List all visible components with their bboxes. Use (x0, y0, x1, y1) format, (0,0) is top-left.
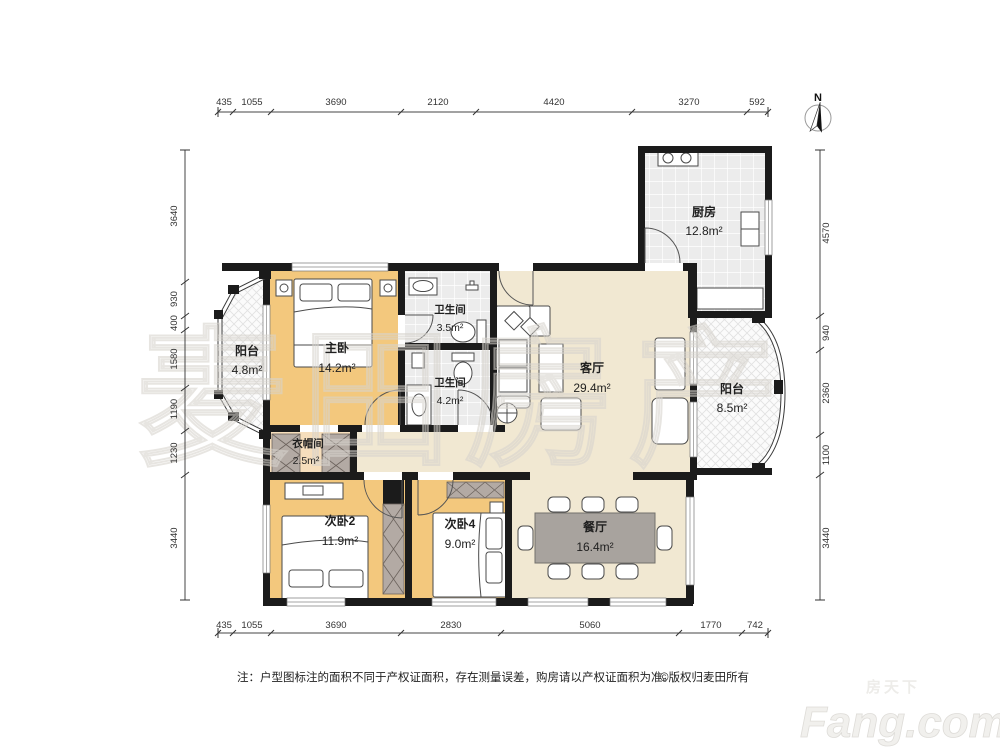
window (765, 200, 772, 255)
svg-text:1100: 1100 (821, 445, 832, 465)
svg-text:3640: 3640 (169, 205, 180, 226)
svg-text:1230: 1230 (169, 442, 180, 463)
svg-text:4.8m²: 4.8m² (232, 363, 263, 377)
cloakroom-label: 衣帽间 (292, 437, 324, 450)
svg-text:1770: 1770 (700, 620, 721, 631)
wardrobe-icon (383, 480, 404, 594)
svg-text:1190: 1190 (169, 399, 180, 419)
window (292, 263, 388, 271)
dresser-icon (285, 483, 343, 499)
bath-mid-label: 卫生间 (434, 376, 466, 389)
kitchen-label: 厨房 (692, 204, 716, 219)
dimension-bottom: 435 1055 3690 2830 5060 1770 742 (215, 620, 771, 638)
svg-text:940: 940 (821, 325, 832, 341)
fang-logo-cn: 房天下 (866, 678, 920, 696)
svg-text:2120: 2120 (427, 97, 448, 108)
window (610, 598, 666, 606)
svg-text:4.2m²: 4.2m² (437, 395, 464, 407)
floorplan-page: 麦田房产 厨房 12.8m² 阳台 4.8m² 主卧 14.2m² 卫生间 3.… (0, 0, 1000, 750)
copyright-note: ©版权归麦田所有 (660, 670, 749, 684)
svg-text:742: 742 (747, 620, 763, 631)
bed4-label: 次卧4 (445, 516, 476, 531)
svg-text:3440: 3440 (821, 527, 832, 548)
window (528, 598, 588, 606)
counter-icon (697, 288, 763, 309)
north-arrow: N (805, 92, 831, 133)
svg-text:435: 435 (216, 97, 232, 108)
svg-text:2830: 2830 (440, 620, 461, 631)
dimension-top: 435 1055 3690 2120 4420 3270 592 (215, 97, 771, 117)
svg-text:435: 435 (216, 620, 232, 631)
fang-logo-en: Fang.com (800, 698, 1000, 747)
window (287, 598, 345, 606)
svg-text:4420: 4420 (543, 97, 564, 108)
wardrobe-icon (447, 482, 504, 498)
svg-text:9.0m²: 9.0m² (445, 537, 476, 551)
svg-text:2360: 2360 (821, 382, 832, 403)
fang-logo: 房天下 Fang.com (800, 678, 1000, 747)
balcony-right-label: 阳台 (720, 381, 744, 396)
north-label: N (814, 92, 822, 104)
dining-label: 餐厅 (583, 519, 607, 534)
svg-text:1580: 1580 (169, 348, 180, 369)
living-label: 客厅 (579, 360, 604, 375)
svg-text:3270: 3270 (678, 97, 699, 108)
footer: 注：户型图标注的面积不同于产权证面积，存在测量误差，购房请以产权证面积为准。 ©… (237, 670, 749, 684)
svg-text:5060: 5060 (579, 620, 600, 631)
svg-text:2.5m²: 2.5m² (293, 455, 320, 467)
watermark-text: 麦田房产 (137, 316, 793, 484)
window (432, 598, 496, 606)
bed2-label: 次卧2 (325, 513, 356, 528)
double-bed-icon (282, 516, 368, 600)
dimension-right: 4570 940 2360 1100 3440 (815, 150, 832, 600)
nightstand-icon (490, 502, 503, 513)
bath-top-label: 卫生间 (434, 303, 466, 316)
nightstand-icon (276, 280, 292, 296)
svg-text:400: 400 (169, 315, 180, 331)
window (686, 497, 694, 585)
svg-text:3690: 3690 (325, 97, 346, 108)
master-label: 主卧 (325, 340, 349, 355)
svg-text:1055: 1055 (241, 620, 262, 631)
window (263, 505, 270, 573)
svg-text:8.5m²: 8.5m² (717, 401, 748, 415)
entry-floor (645, 270, 690, 312)
svg-text:1055: 1055 (241, 97, 262, 108)
svg-text:3690: 3690 (325, 620, 346, 631)
svg-text:592: 592 (749, 97, 765, 108)
svg-text:29.4m²: 29.4m² (573, 381, 610, 395)
svg-text:3.5m²: 3.5m² (437, 322, 464, 334)
sink-icon (409, 278, 437, 295)
floor-plan-svg: 麦田房产 厨房 12.8m² 阳台 4.8m² 主卧 14.2m² 卫生间 3.… (0, 0, 1000, 750)
nightstand-icon (380, 280, 396, 296)
svg-text:12.8m²: 12.8m² (685, 224, 722, 238)
svg-text:3440: 3440 (169, 527, 180, 548)
svg-text:16.4m²: 16.4m² (576, 540, 613, 554)
svg-text:11.9m²: 11.9m² (322, 534, 358, 548)
disclaimer-note: 注：户型图标注的面积不同于产权证面积，存在测量误差，购房请以产权证面积为准。 (237, 670, 674, 684)
balcony-left-label: 阳台 (235, 343, 259, 358)
svg-text:4570: 4570 (821, 222, 832, 243)
fridge-icon (741, 212, 759, 246)
svg-text:930: 930 (169, 291, 180, 307)
svg-text:14.2m²: 14.2m² (318, 361, 355, 375)
